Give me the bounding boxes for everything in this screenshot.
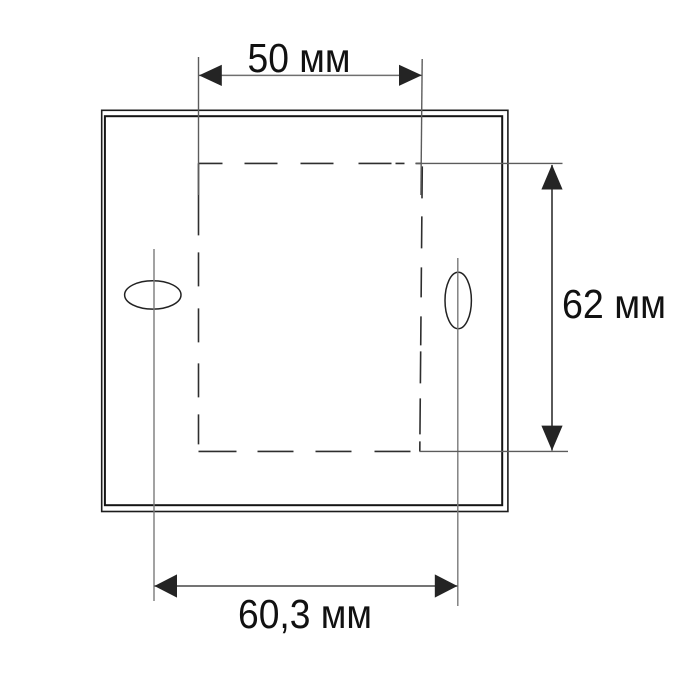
svg-text:60,3 мм: 60,3 мм bbox=[238, 591, 372, 637]
svg-text:50 мм: 50 мм bbox=[248, 35, 351, 81]
svg-text:62 мм: 62 мм bbox=[562, 281, 666, 327]
